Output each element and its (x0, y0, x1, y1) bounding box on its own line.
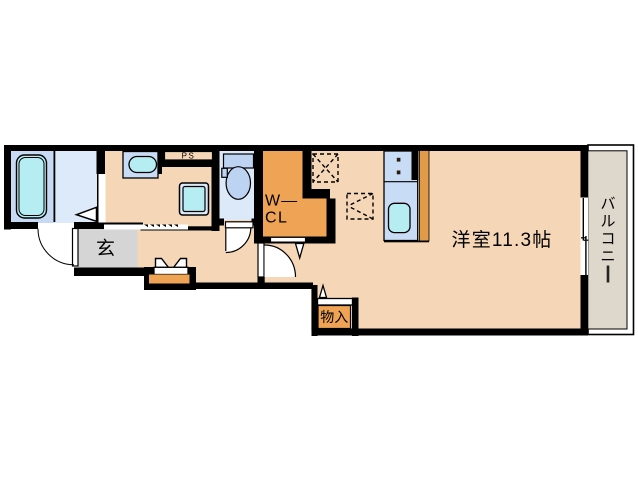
svg-text:ル: ル (600, 213, 615, 230)
svg-text:物入: 物入 (320, 309, 348, 325)
svg-text:ニ: ニ (600, 248, 615, 265)
svg-text:CL: CL (265, 210, 288, 227)
svg-text:PS: PS (182, 151, 196, 160)
svg-text:コ: コ (600, 231, 615, 248)
svg-text:バ: バ (600, 195, 615, 212)
svg-text:玄: 玄 (96, 238, 115, 260)
svg-text:洋室11.3帖: 洋室11.3帖 (452, 229, 553, 251)
svg-text:W—: W— (265, 193, 298, 210)
